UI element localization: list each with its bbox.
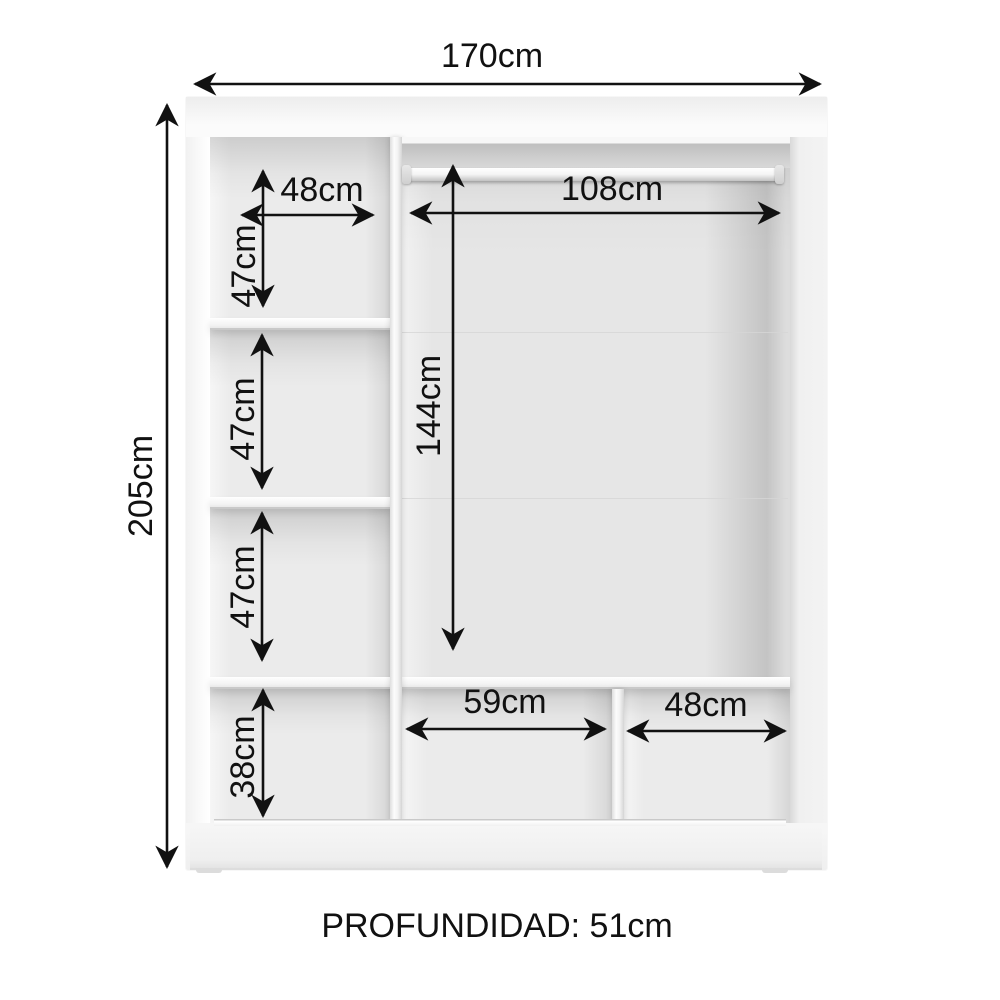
dim-label-middle-shelf-height: 47cm bbox=[226, 377, 260, 460]
wardrobe-dimension-diagram: 170cm 205cm 48cm 47cm 47cm 47cm 38cm 108… bbox=[0, 0, 1000, 1000]
dim-label-upper-shelf-height: 47cm bbox=[227, 224, 261, 307]
dim-label-hanging-space-height: 144cm bbox=[412, 355, 446, 457]
dim-label-hanging-rod-width: 108cm bbox=[561, 172, 663, 206]
dim-label-overall-width: 170cm bbox=[441, 39, 543, 73]
dim-label-lower-shelf-height: 47cm bbox=[226, 545, 260, 628]
dim-label-top-shelf-width: 48cm bbox=[280, 173, 363, 207]
dim-label-bottom-shelf-height: 38cm bbox=[226, 715, 260, 798]
dim-label-bottom-right-width: 48cm bbox=[664, 688, 747, 722]
depth-note: PROFUNDIDAD: 51cm bbox=[321, 909, 672, 943]
dim-label-overall-height: 205cm bbox=[124, 435, 158, 537]
dim-label-bottom-middle-width: 59cm bbox=[463, 685, 546, 719]
